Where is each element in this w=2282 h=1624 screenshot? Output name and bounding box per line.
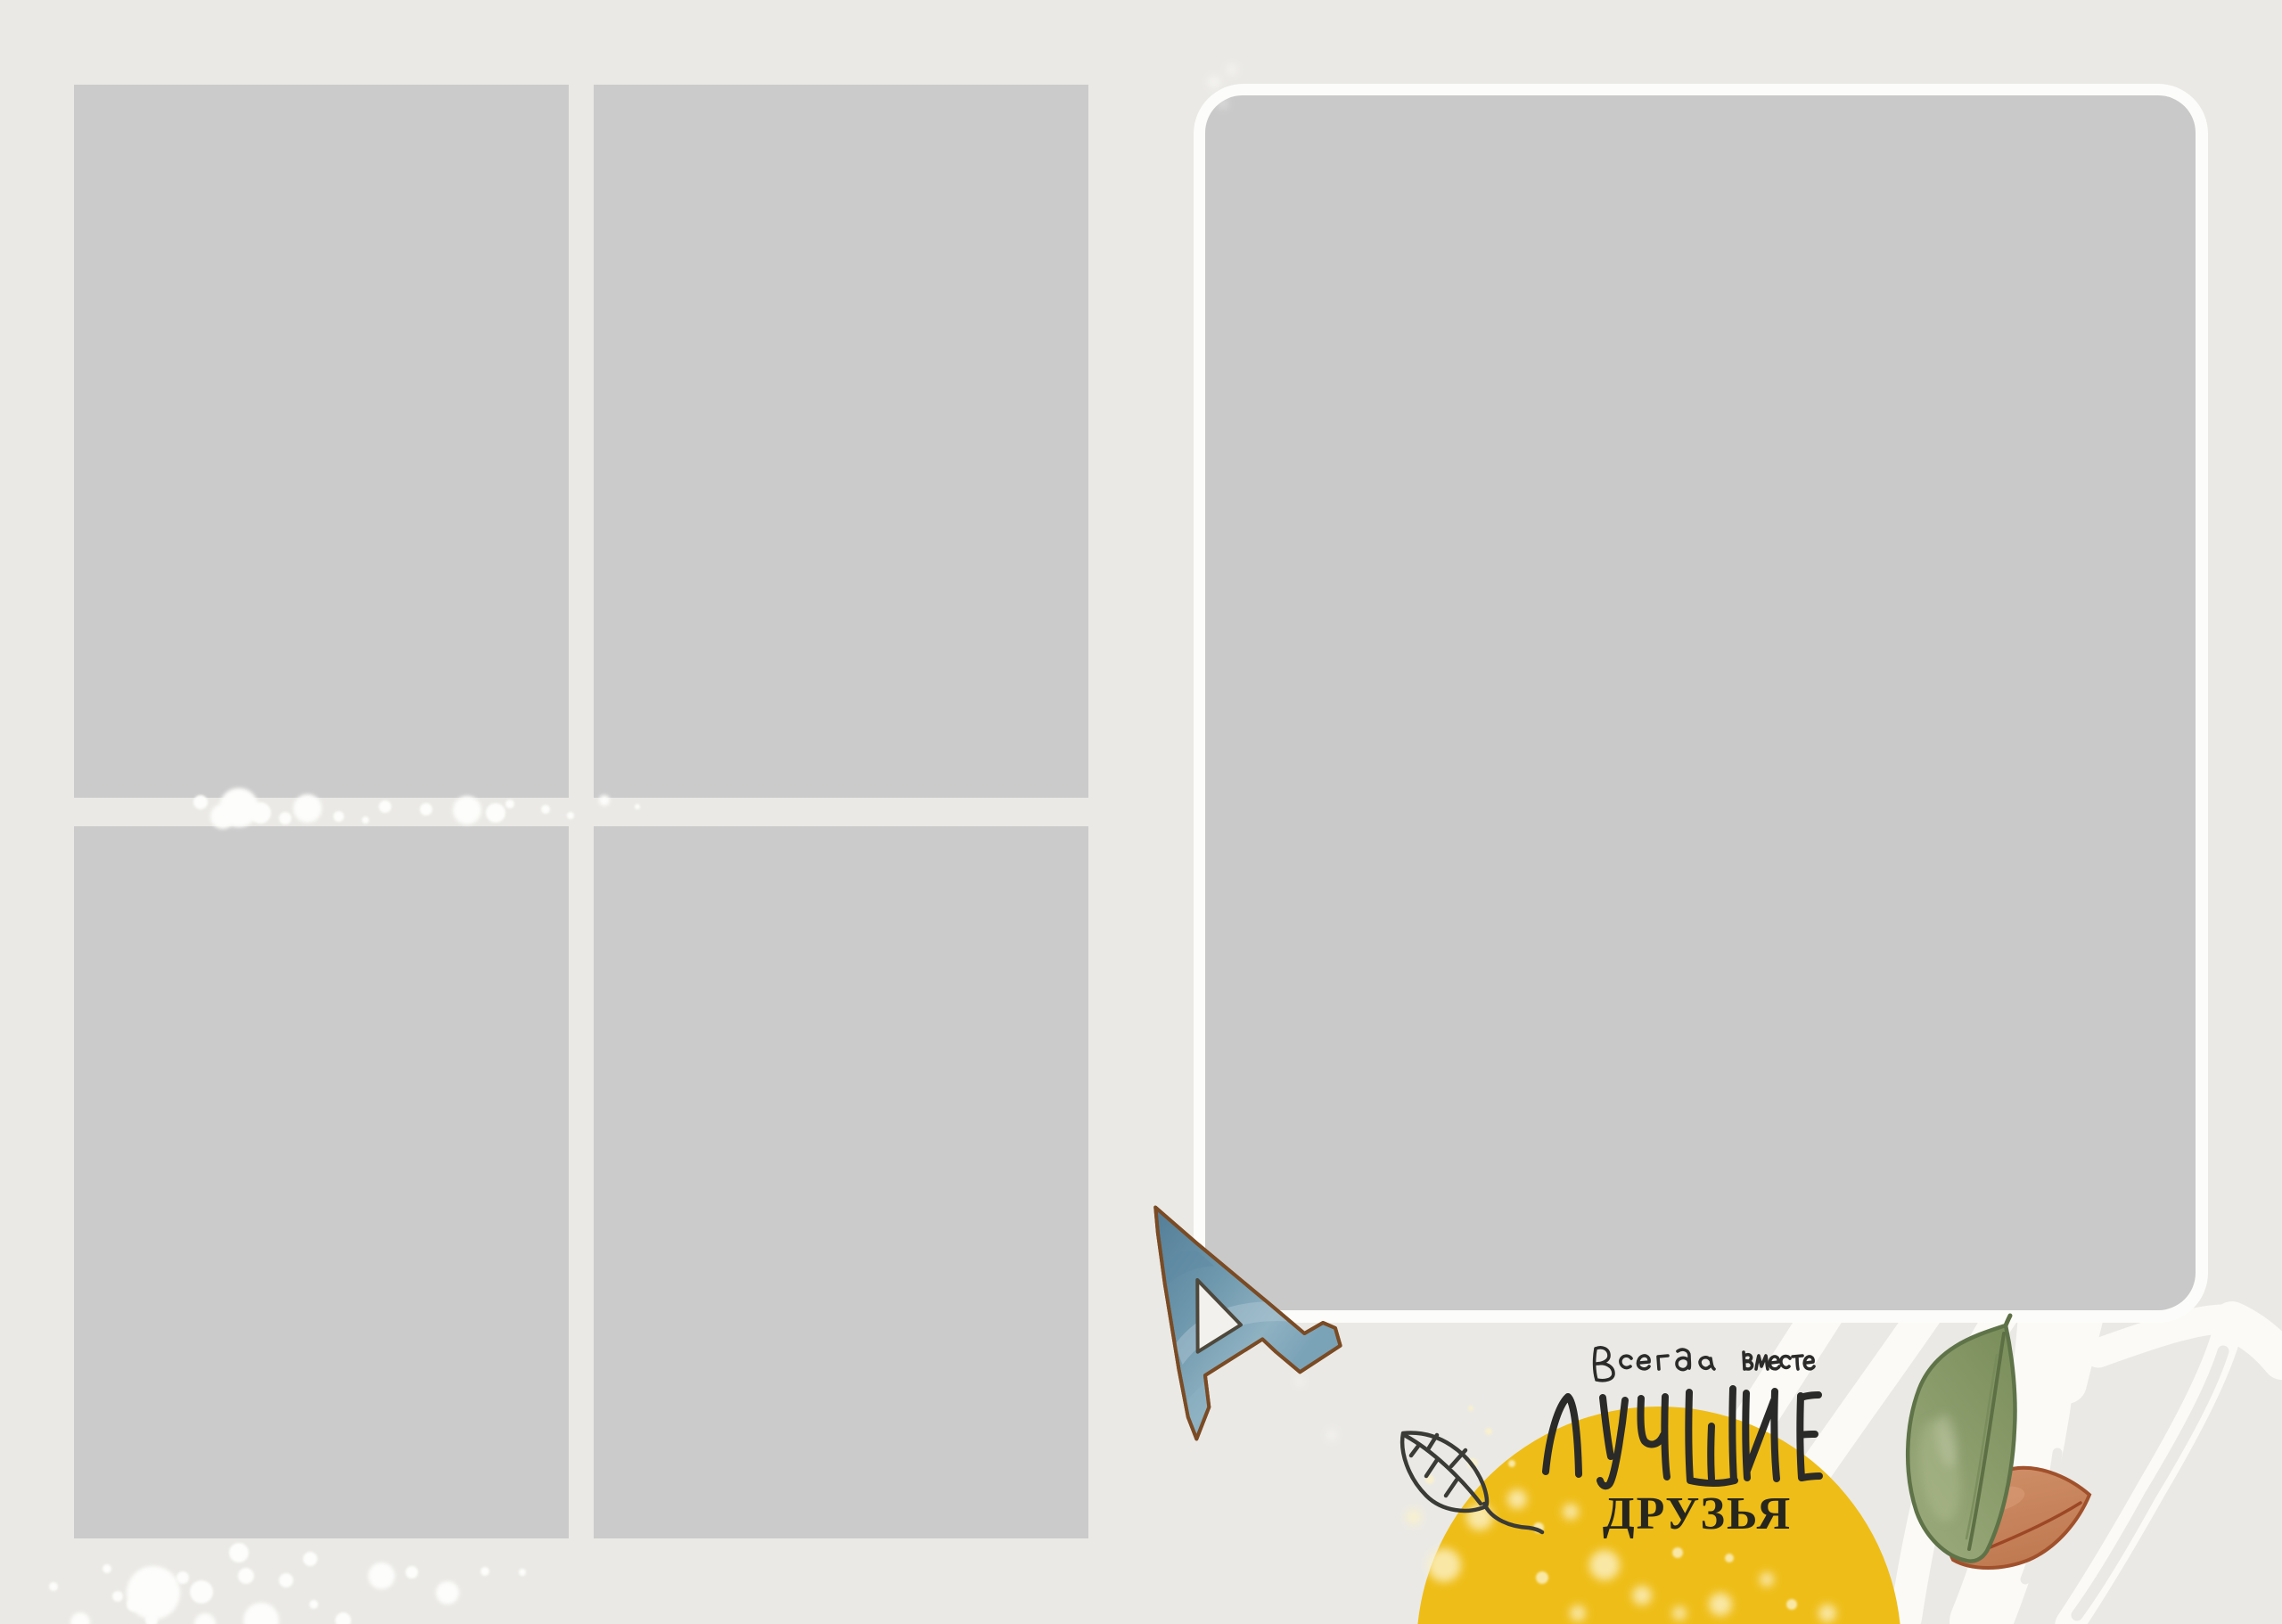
svg-text:ДРУЗЬЯ: ДРУЗЬЯ (1603, 1489, 1792, 1539)
